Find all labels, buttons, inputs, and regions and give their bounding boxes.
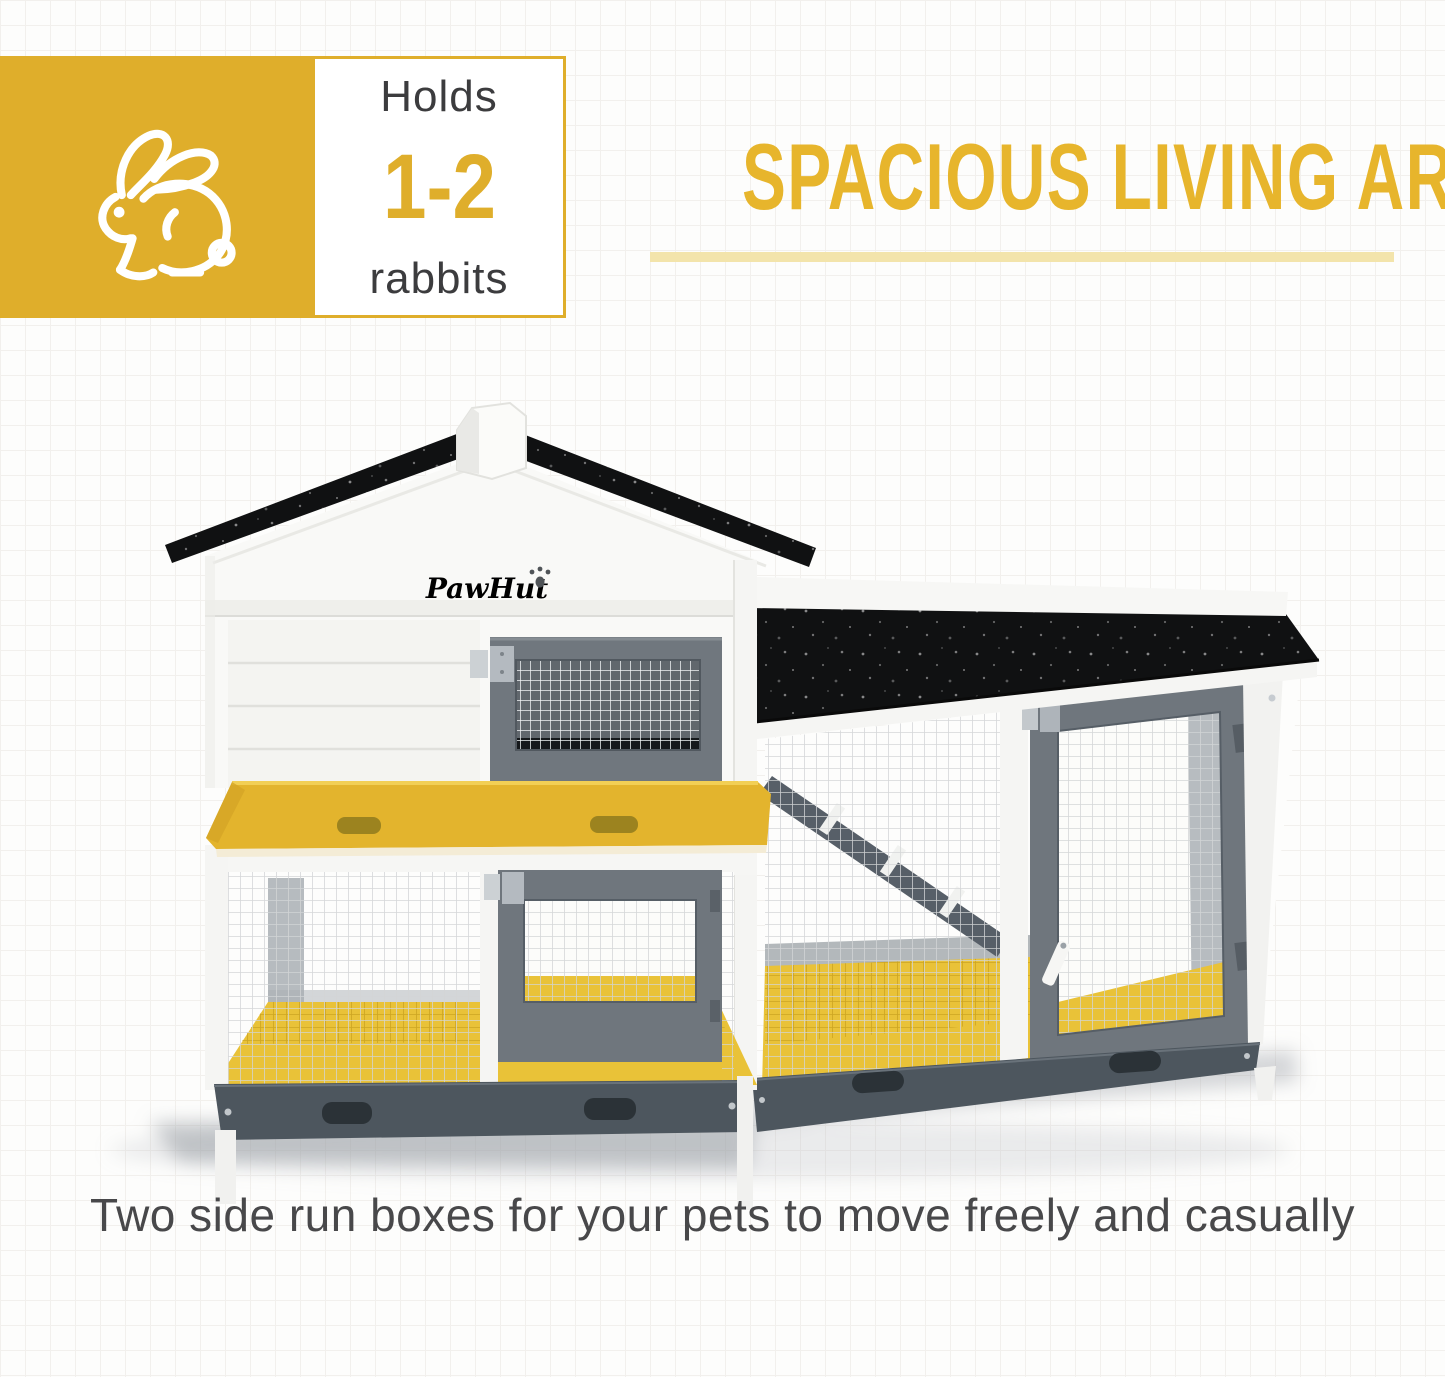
right-skirt-slot-1 bbox=[851, 1070, 904, 1094]
caption-text: Two side run boxes for your pets to move… bbox=[0, 1188, 1445, 1242]
left-door-hinge-top bbox=[710, 890, 720, 912]
siding-panel bbox=[228, 620, 480, 788]
left-run-mesh-panel bbox=[228, 872, 480, 1086]
upper-door-latch bbox=[470, 646, 514, 682]
product-figure: PawHut bbox=[0, 0, 1445, 1377]
left-door-hinge-bottom bbox=[710, 1000, 720, 1022]
right-run-mesh-panel bbox=[765, 712, 1002, 1086]
left-run-door-latch bbox=[484, 872, 524, 904]
main-hutch-section: PawHut bbox=[165, 403, 816, 1210]
left-skirt-slot-1 bbox=[322, 1102, 372, 1124]
left-run-middle-post bbox=[480, 870, 498, 1088]
left-run-door bbox=[498, 870, 722, 1062]
rabbit-hutch-illustration: PawHut bbox=[0, 0, 1445, 1377]
hutch-left-post bbox=[205, 845, 228, 1090]
left-skirt-slot-2 bbox=[584, 1098, 636, 1120]
left-base-skirt bbox=[214, 1080, 745, 1140]
pull-out-tray bbox=[206, 782, 771, 857]
corner-post-screw bbox=[1269, 695, 1276, 702]
right-run-door bbox=[1022, 680, 1254, 1062]
brand-logo: PawHut bbox=[425, 572, 548, 605]
roof-finial bbox=[457, 403, 526, 479]
page-background: Holds 1-2 rabbits SPACIOUS LIVING AREA bbox=[0, 0, 1445, 1377]
right-run-section bbox=[723, 576, 1319, 1132]
tray-handle-slot-1 bbox=[337, 817, 381, 834]
upper-hutch-door bbox=[490, 637, 722, 785]
tray-handle-slot-2 bbox=[590, 816, 638, 833]
right-run-middle-post bbox=[1000, 707, 1028, 1062]
right-front-leg bbox=[1254, 1066, 1276, 1100]
right-skirt-slot-2 bbox=[1108, 1050, 1161, 1074]
right-door-latch-top bbox=[1022, 706, 1038, 730]
